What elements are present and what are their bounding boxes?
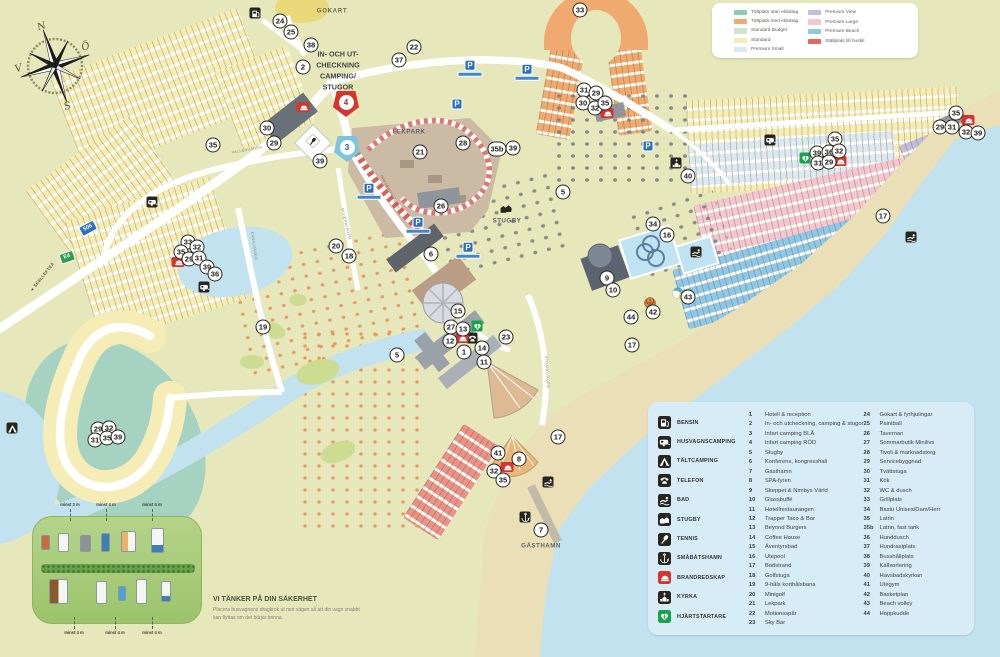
facility-list-item-13: 13Beyond Burgers: [749, 524, 864, 533]
facility-label: Beach volley: [880, 600, 913, 609]
measure-line: [152, 509, 153, 521]
facility-number: 24: [864, 411, 876, 420]
facility-number: 2: [749, 420, 761, 429]
map-marker-35: 35: [598, 96, 613, 111]
facility-label: Motionsspår: [765, 610, 797, 619]
facility-label: Coffee House: [765, 534, 800, 543]
facility-label: Badstrand: [765, 562, 791, 571]
facility-label: Infart camping BLÅ: [765, 430, 814, 439]
facility-list-item-24: 24Gokart & fyrhjulingar: [864, 411, 968, 420]
facility-label: Konferens, kongresshall: [765, 458, 827, 467]
facility-label: Utepool: [765, 553, 785, 562]
map-marker-41: 41: [491, 446, 506, 461]
map-marker-43: 43: [681, 290, 696, 305]
facility-list-item-40: 40Havsbadskyrkan: [864, 572, 968, 581]
map-marker-7: 7: [534, 523, 549, 538]
facility-list-item-35b: 35bLatrin, fast tank: [864, 524, 968, 533]
facility-label: SPA-fyren: [765, 477, 791, 486]
facility-list-item-11: 11Hotellrestaurangen: [749, 506, 864, 515]
facility-number: 38: [864, 553, 876, 562]
stugby-icon: [658, 513, 671, 526]
facility-label: Gästhamn: [765, 468, 792, 477]
map-marker-15: 15: [451, 304, 466, 319]
facility-list-item-22: 22Motionsspår: [749, 610, 864, 619]
map-marker-35b: 35b: [487, 142, 506, 157]
facility-list-item-8: 8SPA-fyren: [749, 477, 864, 486]
facility-label: Stugby: [765, 449, 783, 458]
map-marker-39: 39: [111, 430, 126, 445]
facility-number: 15: [749, 543, 761, 552]
map-marker-39: 39: [313, 154, 328, 169]
map-marker-30: 30: [260, 121, 275, 136]
distance-label: minst 3 m: [60, 503, 80, 507]
facility-number: 44: [864, 610, 876, 619]
facility-number: 39: [864, 562, 876, 571]
vehicle: [136, 579, 147, 604]
pitch-legend-item: Standard: [734, 37, 798, 44]
vehicle: [151, 528, 164, 553]
entrance-number: 4: [339, 95, 354, 110]
vehicle: [101, 533, 110, 552]
distance-label: minst 4 m: [96, 503, 116, 507]
facility-list-item-38: 38Busshållplats: [864, 553, 968, 562]
facility-label: Skeppet & Nimbys Värld: [765, 487, 828, 496]
telefon-icon: [658, 474, 671, 487]
measure-line: [106, 509, 107, 521]
facility-icon-label: SMÅBÅTSHAMN: [677, 555, 722, 561]
facility-icon-row: TENNIS: [658, 529, 749, 548]
facility-list-item-17: 17Badstrand: [749, 562, 864, 571]
pitch-legend-item: Premium Beach: [808, 28, 864, 35]
facility-label: Lekpark: [765, 600, 786, 609]
map-marker-34: 34: [646, 217, 661, 232]
facility-list-item-21: 21Lekpark: [749, 600, 864, 609]
map-marker-39: 39: [971, 126, 986, 141]
map-marker-36: 36: [208, 267, 223, 282]
map-marker-1: 1: [457, 345, 472, 360]
map-marker-5: 5: [556, 185, 571, 200]
facility-label: Infart camping RÖD: [765, 439, 816, 448]
talt-icon: [658, 455, 671, 468]
pitch-color-swatch: [808, 29, 821, 35]
facility-list-item-26: 26Tavernan: [864, 430, 968, 439]
facility-icon-label: TÄLTCAMPING: [677, 458, 718, 464]
hedge-strip: [41, 564, 195, 573]
facility-label: Latrin: [880, 515, 895, 524]
facility-list-item-14: 14Coffee House: [749, 534, 864, 543]
facility-list-item-29: 29Servicebyggnad: [864, 458, 968, 467]
facility-icon-label: KYRKA: [677, 594, 697, 600]
map-marker-37: 37: [392, 53, 407, 68]
facility-label: 9-håls korthålsbana: [765, 581, 816, 590]
pitch-legend-label: Standard Budget: [751, 28, 787, 33]
pitch-legend-item: Standard Budget: [734, 28, 798, 35]
facility-number: 34: [864, 506, 876, 515]
facility-label: Hoppkudde: [880, 610, 910, 619]
facility-list-item-9: 9Skeppet & Nimbys Värld: [749, 487, 864, 496]
map-marker-10: 10: [606, 283, 621, 298]
map-marker-35: 35: [949, 106, 964, 121]
facility-number: 25: [864, 420, 876, 429]
facility-icon-label: BRANDREDSKAP: [677, 575, 725, 581]
facility-list-item-12: 12Trapper Taco & Bar: [749, 515, 864, 524]
kyrka-icon: [658, 591, 671, 604]
facility-icon-label: TELEFON: [677, 478, 704, 484]
facility-number: 5: [749, 449, 761, 458]
facility-list-item-43: 43Beach volley: [864, 600, 968, 609]
vehicle: [161, 581, 171, 602]
facility-label: Sommarbutik Minilivs: [880, 439, 935, 448]
facility-icon-row: HJÄRTSTARTARE: [658, 607, 749, 626]
map-marker-14: 14: [475, 341, 490, 356]
pitch-color-swatch: [808, 19, 821, 25]
map-marker-29: 29: [267, 136, 282, 151]
facility-number: 21: [749, 600, 761, 609]
facility-icon-row: BAD: [658, 491, 749, 510]
safety-heading: VI TÄNKER PÅ DIN SÄKERHET: [213, 596, 317, 604]
entrance-arrow-3: 3: [334, 136, 360, 162]
facility-icon-row: SMÅBÅTSHAMN: [658, 549, 749, 568]
brand-icon: [658, 571, 671, 584]
map-marker-2: 2: [296, 60, 311, 75]
facility-number: 35b: [864, 524, 876, 533]
map-marker-29: 29: [822, 155, 837, 170]
safety-body-text: Placera husvagnens dragkrok ut mot vägen…: [213, 607, 365, 622]
facility-number: 26: [864, 430, 876, 439]
entrance-number: 3: [340, 140, 355, 155]
pitch-color-swatch: [734, 10, 747, 16]
facility-number: 30: [864, 468, 876, 477]
map-marker-39: 39: [506, 141, 521, 156]
facility-number: 33: [864, 496, 876, 505]
bad-icon: [658, 494, 671, 507]
facility-list-item-16: 16Utepool: [749, 553, 864, 562]
pitch-legend-item: Ställplats till husbil: [808, 38, 864, 45]
pitch-legend-column-1: Tältplats utan elduttagTältplats med eld…: [734, 9, 798, 53]
facility-list-item-37: 37Hundrastplats: [864, 543, 968, 552]
facility-number: 32: [864, 487, 876, 496]
facility-list-item-19: 199-håls korthålsbana: [749, 581, 864, 590]
facility-number: 36: [864, 534, 876, 543]
husvagn-icon: [658, 436, 671, 449]
facility-list-item-3: 3Infart camping BLÅ: [749, 430, 864, 439]
facility-list-item-27: 27Sommarbutik Minilivs: [864, 439, 968, 448]
facility-label: Bastu Unisex/Dam/Herr: [880, 506, 941, 515]
facility-label: Hunddusch: [880, 534, 909, 543]
pitch-legend-item: Tältplats med elduttag: [734, 18, 798, 25]
defib-icon: [658, 610, 671, 623]
facility-number: 13: [749, 524, 761, 533]
pitch-legend-item: Tältplats utan elduttag: [734, 9, 798, 16]
facility-number: 12: [749, 515, 761, 524]
map-marker-23: 23: [499, 330, 514, 345]
map-marker-11: 11: [477, 355, 492, 370]
pitch-legend-label: Premium Small: [751, 47, 784, 52]
map-marker-6: 6: [424, 247, 439, 262]
pitch-legend-label: Ställplats till husbil: [825, 39, 864, 44]
facility-list-item-1: 1Hotell & reception: [749, 411, 864, 420]
facility-number: 10: [749, 496, 761, 505]
map-marker-12: 12: [443, 334, 458, 349]
facility-label: Hundrastplats: [880, 543, 916, 552]
facility-icon-row: HUSVAGNSCAMPING: [658, 432, 749, 451]
facility-list-item-32: 32WC & dusch: [864, 487, 968, 496]
facility-number: 19: [749, 581, 761, 590]
facility-list-item-36: 36Hunddusch: [864, 534, 968, 543]
pitch-color-swatch: [734, 38, 747, 44]
map-marker-33: 33: [573, 3, 588, 18]
facility-list-item-15: 15Äventyrsbad: [749, 543, 864, 552]
facility-label: Äventyrsbad: [765, 543, 797, 552]
pitch-type-legend: Tältplats utan elduttagTältplats med eld…: [712, 3, 918, 58]
facility-label: Beyond Burgers: [765, 524, 807, 533]
vehicle: [118, 586, 126, 601]
facility-number: 18: [749, 572, 761, 581]
facility-number: 11: [749, 506, 761, 515]
facility-numbers-24-44: 24Gokart & fyrhjulingar25Paintball26Tave…: [864, 411, 968, 629]
map-marker-35: 35: [206, 138, 221, 153]
facility-number: 40: [864, 572, 876, 581]
facility-list-item-20: 20Minigolf: [749, 591, 864, 600]
map-marker-5: 5: [390, 348, 405, 363]
facility-label: Hotell & reception: [765, 411, 811, 420]
facility-label: Tavernan: [880, 430, 904, 439]
facility-label: Tvättstuga: [880, 468, 907, 477]
facility-number: 8: [749, 477, 761, 486]
facility-icon-label: BENSIN: [677, 420, 699, 426]
facility-list-item-35: 35Latrin: [864, 515, 968, 524]
pitch-legend-column-2: Premium ViewPremium LargePremium BeachSt…: [808, 9, 864, 53]
facility-label: Minigolf: [765, 591, 785, 600]
facility-icon-row: BRANDREDSKAP: [658, 568, 749, 587]
facility-label: Sky Bar: [765, 619, 785, 628]
facility-list-item-39: 39Källsortering: [864, 562, 968, 571]
pitch-legend-label: Standard: [751, 38, 770, 43]
facility-number: 4: [749, 439, 761, 448]
vehicle: [80, 535, 91, 552]
facility-list-item-31: 31Kök: [864, 477, 968, 486]
facility-list-item-10: 10Glassbuffé: [749, 496, 864, 505]
compass-west: V: [14, 62, 26, 75]
pitch-color-swatch: [808, 39, 821, 45]
facility-label: Trapper Taco & Bar: [765, 515, 815, 524]
facility-label: Basketplan: [880, 591, 909, 600]
measure-line: [115, 617, 116, 629]
facility-icon-label: TENNIS: [677, 536, 698, 542]
map-marker-17: 17: [551, 430, 566, 445]
facility-legend: BENSINHUSVAGNSCAMPINGTÄLTCAMPINGTELEFONB…: [648, 402, 974, 635]
facility-label: Servicebyggnad: [880, 458, 922, 467]
facility-list-item-28: 28Tivoli & marknadstorg: [864, 449, 968, 458]
map-marker-40: 40: [681, 169, 696, 184]
facility-number: 17: [749, 562, 761, 571]
distance-label: minst 4 m: [142, 503, 162, 507]
facility-icon-label: BAD: [677, 497, 689, 503]
map-marker-35: 35: [496, 473, 511, 488]
facility-label: Havsbadskyrkan: [880, 572, 923, 581]
facility-list-item-4: 4Infart camping RÖD: [749, 439, 864, 448]
facility-label: WC & dusch: [880, 487, 912, 496]
facility-number: 16: [749, 553, 761, 562]
facility-label: Utegym: [880, 581, 900, 590]
map-marker-19: 19: [256, 320, 271, 335]
facility-label: Kök: [880, 477, 890, 486]
pitch-legend-label: Premium Large: [825, 20, 858, 25]
map-marker-17: 17: [876, 209, 891, 224]
facility-icon-row: TELEFON: [658, 471, 749, 490]
map-marker-8: 8: [512, 452, 527, 467]
map-marker-25: 25: [284, 25, 299, 40]
facility-icon-row: KYRKA: [658, 588, 749, 607]
facility-number: 22: [749, 610, 761, 619]
facility-label: Grillplats: [880, 496, 903, 505]
map-marker-26: 26: [434, 199, 449, 214]
facility-list-item-42: 42Basketplan: [864, 591, 968, 600]
measure-line: [70, 509, 71, 521]
ankare-icon: [658, 552, 671, 565]
facility-list-item-5: 5Stugby: [749, 449, 864, 458]
facility-number: 31: [864, 477, 876, 486]
facility-icon-row: STUGBY: [658, 510, 749, 529]
vehicle: [96, 581, 107, 604]
pitch-color-swatch: [734, 28, 747, 34]
pitch-legend-item: Premium View: [808, 9, 864, 16]
facility-label: Latrin, fast tank: [880, 524, 920, 533]
map-marker-17: 17: [625, 338, 640, 353]
map-marker-20: 20: [329, 239, 344, 254]
facility-list-item-6: 6Konferens, kongresshall: [749, 458, 864, 467]
map-marker-38: 38: [304, 38, 319, 53]
facility-icon-row: BENSIN: [658, 413, 749, 432]
facility-label: Hotellrestaurangen: [765, 506, 814, 515]
facility-number: 6: [749, 458, 761, 467]
facility-list-item-2: 2In- och utcheckning, camping & stugor: [749, 420, 864, 429]
pitch-legend-label: Tältplats utan elduttag: [751, 10, 798, 15]
map-marker-21: 21: [413, 145, 428, 160]
distance-label: minst 4 m: [105, 631, 125, 635]
facility-list-item-44: 44Hoppkudde: [864, 610, 968, 619]
vehicle: [49, 579, 68, 604]
facility-number: 14: [749, 534, 761, 543]
pitch-color-swatch: [734, 19, 747, 25]
facility-list-item-30: 30Tvättstuga: [864, 468, 968, 477]
vehicle: [121, 531, 136, 552]
facility-label: Tivoli & marknadstorg: [880, 449, 936, 458]
map-marker-22: 22: [407, 40, 422, 55]
facility-label: Busshållplats: [880, 553, 914, 562]
facility-number: 42: [864, 591, 876, 600]
facility-label: Gokart & fyrhjulingar: [880, 411, 933, 420]
facility-icon-column: BENSINHUSVAGNSCAMPINGTÄLTCAMPINGTELEFONB…: [658, 411, 749, 629]
facility-label: Golfstuga: [765, 572, 790, 581]
facility-icon-label: HJÄRTSTARTARE: [677, 614, 726, 620]
map-marker-44: 44: [624, 310, 639, 325]
measure-line: [152, 617, 153, 629]
facility-label: Paintball: [880, 420, 902, 429]
facility-list-item-34: 34Bastu Unisex/Dam/Herr: [864, 506, 968, 515]
facility-icon-row: TÄLTCAMPING: [658, 452, 749, 471]
facility-list-item-41: 41Utegym: [864, 581, 968, 590]
facility-icon-label: HUSVAGNSCAMPING: [677, 439, 736, 445]
facility-list-item-7: 7Gästhamn: [749, 468, 864, 477]
vehicle: [41, 535, 50, 550]
map-marker-31: 31: [945, 120, 960, 135]
entrance-arrow-4: 4: [333, 91, 359, 117]
facility-icon-label: STUGBY: [677, 517, 701, 523]
facility-number: 3: [749, 430, 761, 439]
tennis-icon: [658, 533, 671, 546]
map-marker-42: 42: [646, 305, 661, 320]
facility-list-item-23: 23Sky Bar: [749, 619, 864, 628]
bensin-icon: [658, 416, 671, 429]
pitch-color-swatch: [734, 47, 747, 53]
facility-numbers-1-23: 1Hotell & reception2In- och utcheckning,…: [749, 411, 864, 629]
facility-list-item-18: 18Golfstuga: [749, 572, 864, 581]
distance-label: minst 4 m: [64, 631, 84, 635]
campground-map: GOKARTIN- OCH UT-CHECKNINGCAMPING/STUGOR…: [0, 0, 1000, 657]
facility-number: 28: [864, 449, 876, 458]
map-marker-13: 13: [456, 322, 471, 337]
facility-label: Glassbuffé: [765, 496, 793, 505]
facility-number: 27: [864, 439, 876, 448]
map-marker-18: 18: [342, 249, 357, 264]
pitch-legend-label: Premium View: [825, 10, 856, 15]
facility-number: 20: [749, 591, 761, 600]
facility-number: 1: [749, 411, 761, 420]
facility-number: 41: [864, 581, 876, 590]
facility-number: 35: [864, 515, 876, 524]
pitch-legend-label: Premium Beach: [825, 29, 859, 34]
pitch-color-swatch: [808, 10, 821, 16]
facility-label: Källsortering: [880, 562, 912, 571]
facility-number: 7: [749, 468, 761, 477]
facility-list-item-33: 33Grillplats: [864, 496, 968, 505]
pitch-legend-item: Premium Large: [808, 19, 864, 26]
facility-number: 37: [864, 543, 876, 552]
distance-label: minst 4 m: [142, 631, 162, 635]
map-marker-16: 16: [660, 228, 675, 243]
facility-list-item-25: 25Paintball: [864, 420, 968, 429]
facility-number: 29: [864, 458, 876, 467]
facility-number: 9: [749, 487, 761, 496]
map-marker-28: 28: [456, 136, 471, 151]
pitch-legend-label: Tältplats med elduttag: [751, 19, 798, 24]
facility-label: In- och utcheckning, camping & stugor: [765, 420, 864, 429]
safety-diagram: [32, 516, 202, 624]
measure-line: [74, 617, 75, 629]
vehicle: [58, 533, 69, 552]
pitch-legend-item: Premium Small: [734, 46, 798, 53]
facility-number: 43: [864, 600, 876, 609]
facility-number: 23: [749, 619, 761, 628]
